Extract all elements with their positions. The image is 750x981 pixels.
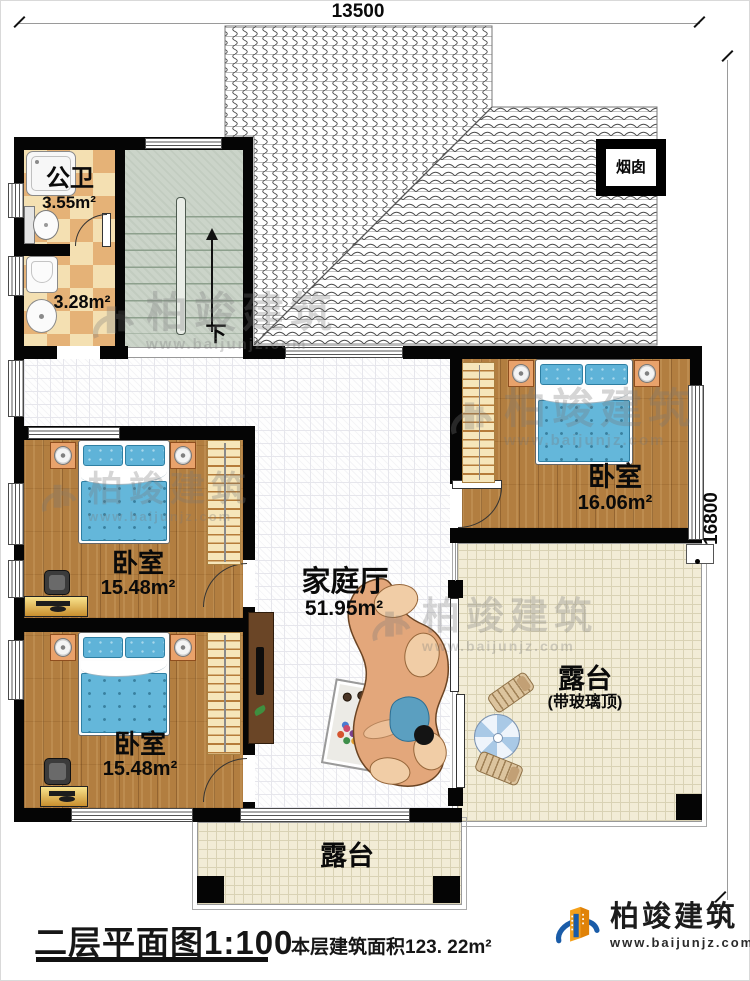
wall xyxy=(410,808,462,822)
window xyxy=(285,347,403,358)
room-label-bathroom: 公卫 xyxy=(42,166,98,191)
pillow xyxy=(83,637,123,658)
window xyxy=(8,640,24,700)
wall xyxy=(193,808,240,822)
title-underline xyxy=(36,957,268,962)
room-label-terrace-bottom: 露台 xyxy=(318,842,376,870)
brand-logo-icon xyxy=(551,898,603,954)
wall xyxy=(243,346,285,359)
brand-logo-block: 柏竣建筑 www.baijunjz.com xyxy=(551,898,750,954)
pillow xyxy=(585,364,628,385)
room-label-bedroom-right: 卧室 xyxy=(583,463,647,491)
lamp-icon xyxy=(638,364,656,383)
dimension-line-top xyxy=(18,23,700,24)
stair-arrow-head xyxy=(206,228,218,240)
window xyxy=(8,360,24,417)
lamp-icon xyxy=(174,446,192,465)
lamp-icon xyxy=(54,446,72,465)
pillow xyxy=(125,445,165,466)
room-label-terrace-right: 露台 xyxy=(556,665,614,693)
wall xyxy=(24,346,57,359)
wardrobe xyxy=(207,632,241,755)
room-area-bedroom-bottom: 15.48m² xyxy=(100,759,180,780)
blanket xyxy=(81,673,167,733)
stair-down-label: 下 xyxy=(196,324,236,346)
tv-cabinet xyxy=(248,612,274,744)
wall xyxy=(24,244,70,256)
wall xyxy=(243,137,253,359)
room-label-bedroom-bottom: 卧室 xyxy=(110,731,170,758)
window xyxy=(71,808,193,822)
wall xyxy=(450,528,702,543)
blanket xyxy=(81,481,167,541)
floor-plan-canvas: 烟囱 13500 16800 xyxy=(0,0,750,981)
nightstand xyxy=(50,634,76,661)
room-label-family-hall: 家庭厅 xyxy=(292,567,398,597)
wardrobe xyxy=(462,362,495,483)
bed xyxy=(78,632,170,736)
room-area-bedroom-right: 16.06m² xyxy=(575,493,655,514)
desk xyxy=(40,786,88,807)
wardrobe xyxy=(207,440,241,565)
brand-website: www.baijunjz.com xyxy=(610,936,750,949)
bed xyxy=(78,440,170,544)
window xyxy=(8,183,24,218)
window xyxy=(8,560,24,598)
floor-area-note: 本层建筑面积123. 22m² xyxy=(291,932,492,959)
nightstand xyxy=(170,442,196,469)
window xyxy=(28,427,120,439)
window xyxy=(8,483,24,545)
desk-chair xyxy=(44,758,71,785)
pillow xyxy=(83,445,123,466)
lamp-icon xyxy=(174,638,192,657)
terrace-post xyxy=(197,876,224,903)
nightstand xyxy=(508,360,534,387)
wall xyxy=(243,440,255,560)
stair-opening xyxy=(128,347,243,358)
stair-direction-arrow xyxy=(211,240,213,332)
terrace-door-jamb xyxy=(686,544,714,564)
lamp-icon xyxy=(512,364,530,383)
wall xyxy=(115,137,125,352)
room-area-laundry: 3.28m² xyxy=(50,293,114,312)
desk-chair xyxy=(44,570,70,595)
bed xyxy=(535,359,633,465)
room-area-family-hall: 51.95m² xyxy=(296,598,392,620)
terrace-door-dot xyxy=(695,559,700,564)
plant-icon xyxy=(253,705,267,716)
blanket xyxy=(538,400,630,462)
room-label-bedroom-mid: 卧室 xyxy=(108,550,168,577)
room-area-bathroom: 3.55m² xyxy=(36,194,102,212)
wall xyxy=(14,137,24,822)
room-area-bedroom-mid: 15.48m² xyxy=(98,578,178,599)
dimension-line-right xyxy=(727,60,728,900)
chimney-box: 烟囱 xyxy=(596,139,666,196)
wall xyxy=(403,346,702,359)
terrace-post xyxy=(433,876,460,903)
stair-railing xyxy=(176,197,186,335)
wall xyxy=(690,359,702,385)
tv-icon xyxy=(256,647,264,695)
brand-name: 柏竣建筑 xyxy=(610,903,750,932)
terrace-post xyxy=(676,794,702,820)
window xyxy=(145,138,222,149)
pillow xyxy=(540,364,583,385)
washing-machine xyxy=(26,256,58,293)
door-opening xyxy=(57,346,100,359)
desk xyxy=(24,596,88,617)
wall xyxy=(24,618,255,632)
dimension-right-value: 16800 xyxy=(702,492,722,545)
nightstand xyxy=(170,634,196,661)
nightstand xyxy=(50,442,76,469)
window xyxy=(8,256,24,296)
room-note-terrace-right: (带玻璃顶) xyxy=(538,695,632,712)
chimney-label: 烟囱 xyxy=(616,160,646,176)
dimension-top-value: 13500 xyxy=(320,2,396,22)
wall xyxy=(14,808,71,822)
toilet-bowl xyxy=(33,210,59,240)
lamp-icon xyxy=(54,638,72,657)
wall xyxy=(100,346,128,359)
nightstand xyxy=(634,360,660,387)
pillow xyxy=(125,637,165,658)
wall xyxy=(450,359,462,484)
sliding-window xyxy=(240,808,410,822)
